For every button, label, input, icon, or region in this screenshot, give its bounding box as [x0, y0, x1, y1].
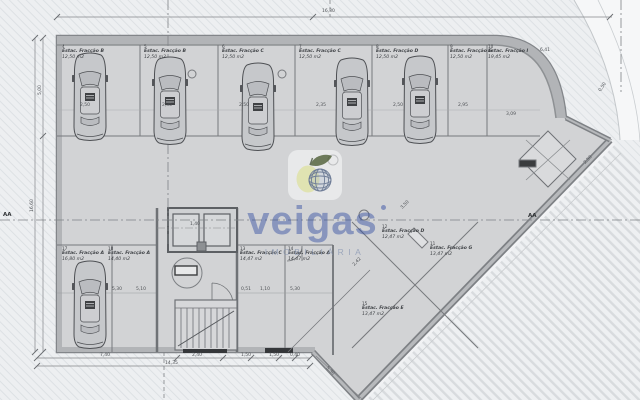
floor-plan-drawing — [0, 0, 640, 400]
elevator — [157, 208, 237, 252]
floor-plan: 4 Estac. Fracção B 12,50 m2 5 Estac. Fra… — [0, 0, 640, 400]
